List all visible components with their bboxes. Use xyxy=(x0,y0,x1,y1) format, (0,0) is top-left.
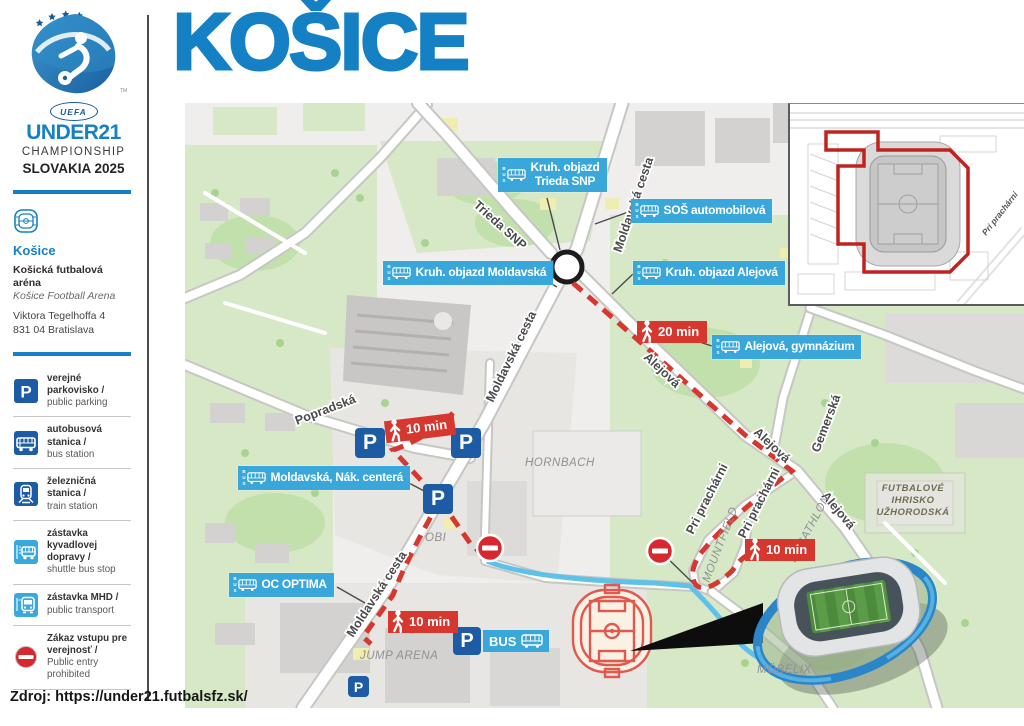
place-jump-arena: JUMP ARENA xyxy=(359,650,438,662)
bus-stop-icon: BUS xyxy=(634,202,659,220)
source-url-text: Zdroj: https://under21.futbalsfz.sk/ xyxy=(10,689,248,705)
divider xyxy=(13,190,131,194)
legend-item-no-entry: Zákaz vstupu pre verejnosť / Public entr… xyxy=(13,626,131,690)
legend-item-parking: P verejné parkovisko / public parking xyxy=(13,366,131,418)
walk-time-badge-10min-decathlon: 10 min xyxy=(745,539,815,561)
pedestrian-icon xyxy=(384,415,406,447)
no-entry-sign xyxy=(477,535,503,561)
stop-label-kruh-objazd-moldavska: BUS Kruh. objazd Moldavská xyxy=(383,261,553,285)
bus-stop-icon: BUS xyxy=(241,469,266,487)
pedestrian-icon xyxy=(389,607,407,637)
divider xyxy=(13,352,131,356)
bus-icon xyxy=(521,634,543,648)
stadium-icon xyxy=(13,208,39,234)
shuttle-bus-stop-icon xyxy=(13,539,39,565)
inset-stadium-plan xyxy=(856,142,960,266)
pedestrian-icon xyxy=(638,317,656,347)
legend-item-bus-station: autobusová stanica / bus station xyxy=(13,417,131,469)
stop-label-moldavska-nak-centera: BUS Moldavská, Nák. centerá xyxy=(238,466,410,490)
train-station-icon xyxy=(13,481,39,507)
no-entry-sign xyxy=(647,538,673,564)
parking-sign: P xyxy=(348,676,369,697)
bus-parking-sign: P BUS xyxy=(453,627,549,655)
city-map: Trieda SNP Moldavská cesta Moldavská ces… xyxy=(185,103,1024,708)
bus-parking-tag: BUS xyxy=(483,630,549,652)
uefa-wordmark: UEFA xyxy=(50,102,98,121)
stadium-site-plan-inset: Pri prachárni xyxy=(788,103,1024,306)
sidebar-divider-line xyxy=(147,15,149,700)
inset-street-pri-pracharni: Pri prachárni xyxy=(980,189,1021,237)
parking-sign: P xyxy=(355,428,385,458)
walk-time-badge-20min: 20 min xyxy=(637,321,707,343)
uefa-u21-emblem-icon: TM xyxy=(21,8,127,96)
legend-item-train-station: železničná stanica / train station xyxy=(13,469,131,521)
walk-time-badge-10min-jump-arena: 10 min xyxy=(388,611,458,633)
stop-label-trieda-snp: BUS Kruh. objazd Trieda SNP xyxy=(498,158,607,192)
map-legend: P verejné parkovisko / public parking au… xyxy=(13,366,131,690)
svg-text:P: P xyxy=(20,383,31,402)
venue-address-line1: Viktora Tegelhoffa 4 xyxy=(13,310,131,324)
bus-stop-icon: BUS xyxy=(715,338,740,356)
competition-title: UNDER21 xyxy=(18,122,130,143)
legend-item-shuttle: zástavka kyvadlovej dopravy / shuttle bu… xyxy=(13,521,131,585)
place-mobelix: MÖBELIX xyxy=(757,664,812,676)
venue-address-line2: 831 04 Bratislava xyxy=(13,324,131,338)
bus-stop-icon: BUS xyxy=(501,166,526,184)
public-transport-icon xyxy=(13,592,39,618)
competition-subtitle: CHAMPIONSHIP xyxy=(18,146,130,158)
stop-label-alejova-gymnazium: BUS Alejová, gymnázium xyxy=(712,335,861,359)
place-futbalove-line1: FUTBALOVÉ xyxy=(882,483,945,494)
place-futbalove-line2: IHRISKO xyxy=(891,495,934,506)
uefa-u21-logo: TM UEFA UNDER21 CHAMPIONSHIP SLOVAKIA 20… xyxy=(18,8,130,176)
parking-icon: P xyxy=(13,378,39,404)
place-futbalove-line3: UŽHORODSKÁ xyxy=(876,506,949,518)
stop-label-kruh-objazd-alejova: BUS Kruh. objazd Alejová xyxy=(633,261,785,285)
stop-label-oc-optima: BUS OC OPTIMA xyxy=(229,573,334,597)
venue-name-sk: Košická futbalová aréna xyxy=(13,264,131,290)
parking-sign: P xyxy=(423,484,453,514)
bus-stop-icon: BUS xyxy=(232,576,257,594)
pedestrian-icon xyxy=(746,535,764,565)
page-title: KOŠICE xyxy=(173,2,468,82)
venue-info: Košice Košická futbalová aréna Košice Fo… xyxy=(13,208,131,338)
stop-label-sos-automobilova: BUS SOŠ automobilová xyxy=(631,199,772,223)
venue-city: Košice xyxy=(13,243,131,258)
no-entry-icon xyxy=(13,644,39,670)
trademark-text: TM xyxy=(120,88,127,94)
roundabout xyxy=(552,252,582,282)
place-hornbach: HORNBACH xyxy=(525,457,595,469)
competition-edition: SLOVAKIA 2025 xyxy=(18,161,130,176)
stadium-plan-icon xyxy=(573,585,651,677)
bus-stop-icon: BUS xyxy=(636,264,661,282)
bus-stop-icon: BUS xyxy=(386,264,411,282)
venue-name-en: Košice Football Arena xyxy=(13,290,131,303)
sidebar: TM UEFA UNDER21 CHAMPIONSHIP SLOVAKIA 20… xyxy=(0,0,147,726)
legend-item-mhd: zástavka MHD / public transport xyxy=(13,585,131,626)
bus-station-icon xyxy=(13,430,39,456)
place-obi: OBI xyxy=(425,532,447,544)
